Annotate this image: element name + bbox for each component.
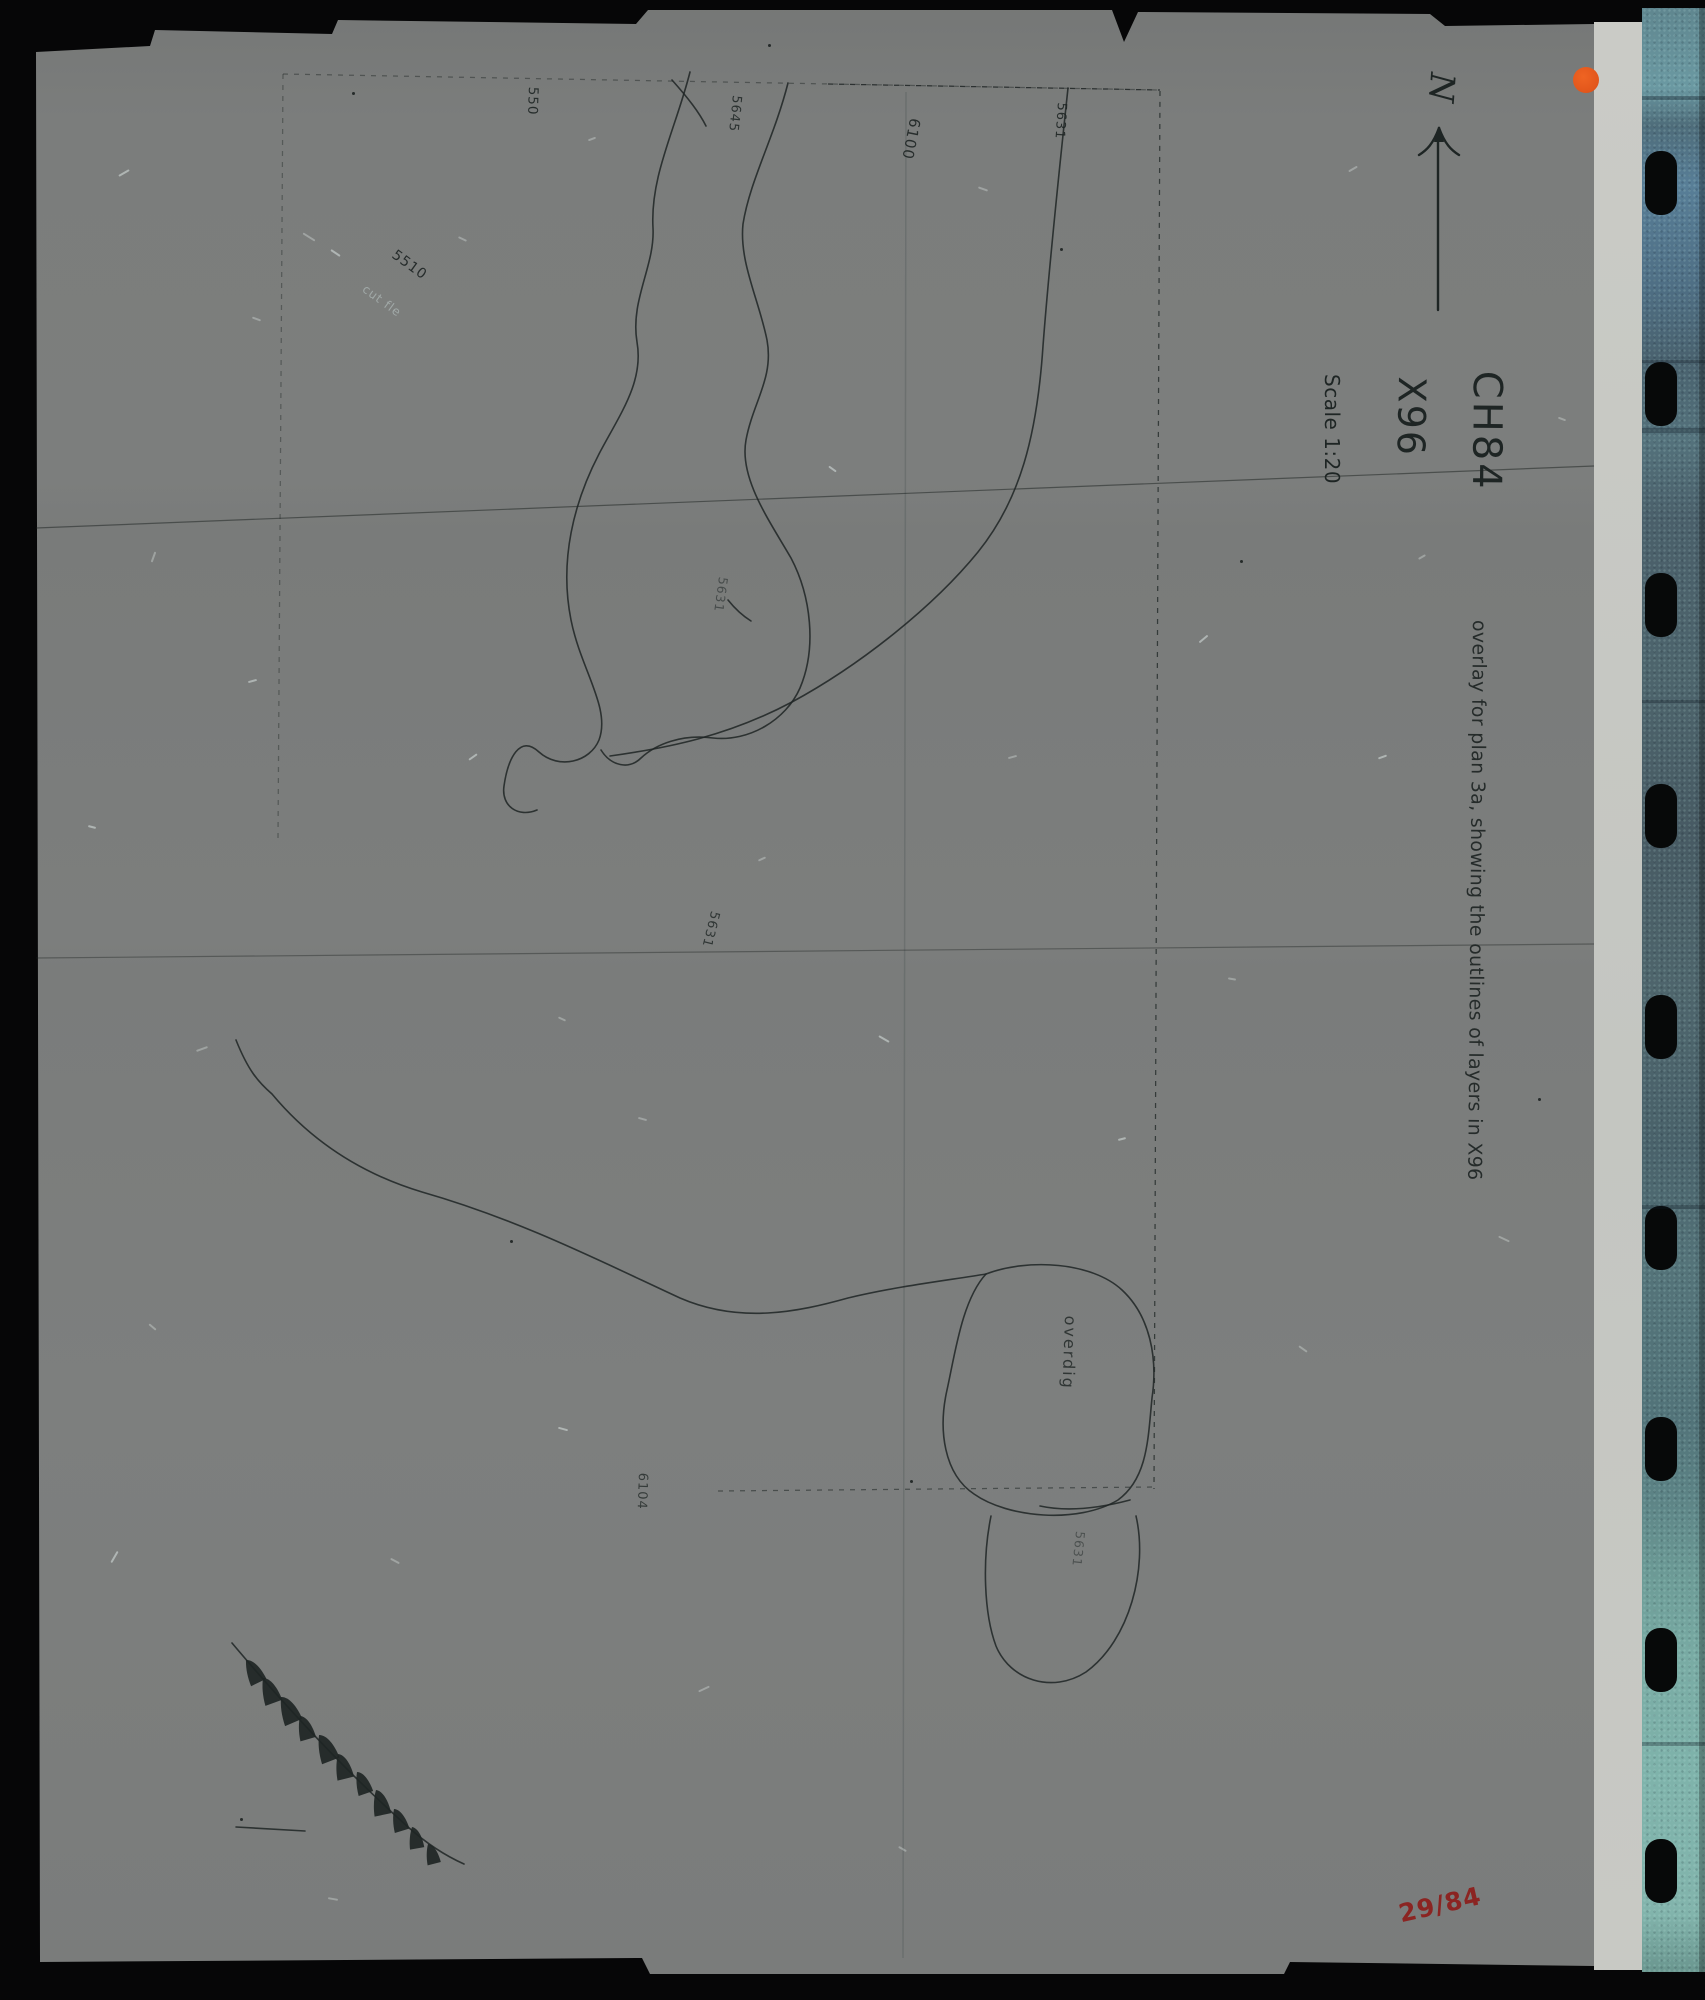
sheet-seam-upper bbox=[36, 466, 1594, 528]
site-code: CH84 bbox=[1463, 371, 1510, 492]
north-letter: N bbox=[1420, 71, 1462, 103]
scan-speck bbox=[510, 1240, 513, 1243]
context-label: 6104 bbox=[634, 1472, 650, 1510]
scanned-plan-sheet: CH84 X96 Scale 1:20 N overlay for plan 3… bbox=[0, 0, 1705, 2000]
slope-hachures bbox=[245, 1660, 444, 1868]
index-sticker-dot bbox=[1573, 67, 1599, 93]
plan-boundary-dashed bbox=[278, 74, 1160, 1491]
context-label: 5631 bbox=[1051, 102, 1069, 140]
scan-speck bbox=[1240, 560, 1243, 563]
plan-drawing bbox=[0, 0, 1705, 2000]
hachure-mark bbox=[423, 1844, 444, 1868]
scan-speck bbox=[1060, 248, 1063, 251]
scan-speck bbox=[352, 92, 355, 95]
context-label: 550 bbox=[524, 86, 541, 115]
scan-speck bbox=[1538, 1098, 1541, 1101]
context-label: overdig bbox=[1058, 1315, 1080, 1390]
scale-label: Scale 1:20 bbox=[1320, 374, 1344, 484]
scan-speck bbox=[240, 1818, 243, 1821]
north-arrow bbox=[1419, 126, 1459, 310]
sheet-crease-vertical bbox=[903, 92, 906, 1958]
area-code: X96 bbox=[1389, 376, 1434, 457]
sheet-seam-lower bbox=[36, 944, 1594, 958]
scan-speck bbox=[768, 44, 771, 47]
scan-speck bbox=[910, 1480, 913, 1483]
layer-outlines bbox=[232, 72, 1154, 1864]
